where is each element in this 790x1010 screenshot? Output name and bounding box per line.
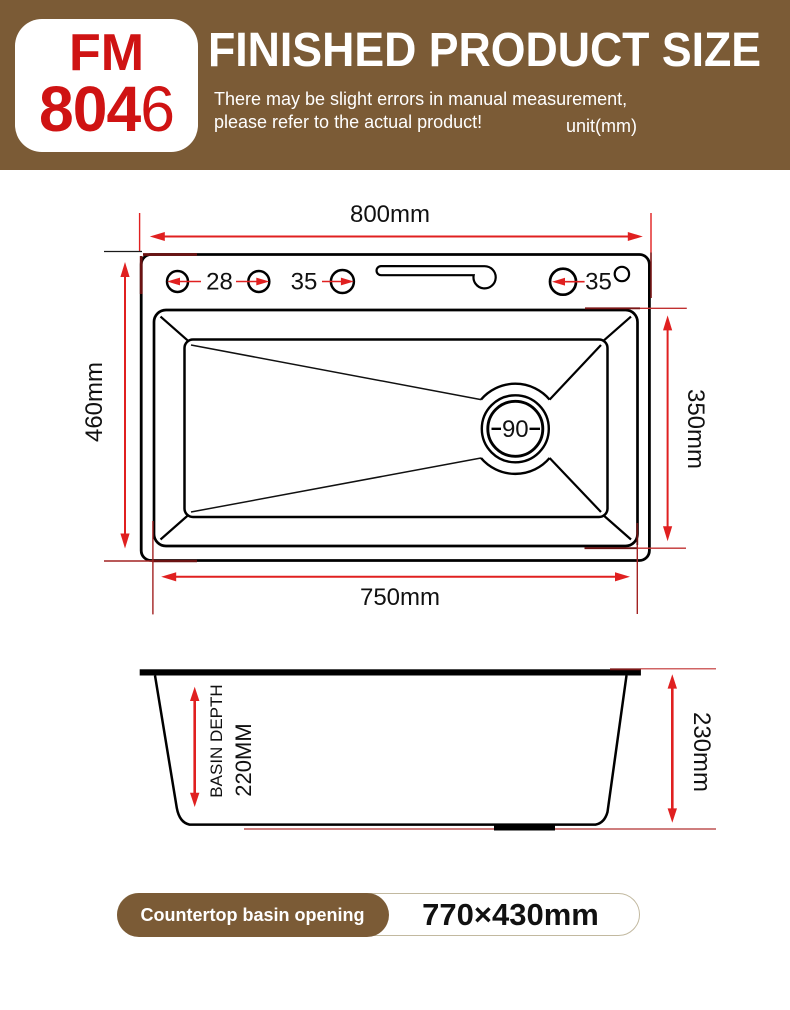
svg-text:35: 35: [585, 269, 612, 296]
svg-text:BASIN DEPTH: BASIN DEPTH: [207, 684, 226, 797]
svg-text:35: 35: [291, 269, 318, 296]
svg-text:90: 90: [502, 416, 529, 443]
svg-text:350mm: 350mm: [682, 389, 709, 469]
svg-text:750mm: 750mm: [360, 584, 440, 611]
svg-text:800mm: 800mm: [350, 201, 430, 228]
svg-text:230mm: 230mm: [688, 712, 715, 792]
svg-text:220MM: 220MM: [231, 723, 256, 796]
svg-text:460mm: 460mm: [81, 362, 108, 442]
svg-text:28: 28: [206, 269, 233, 296]
